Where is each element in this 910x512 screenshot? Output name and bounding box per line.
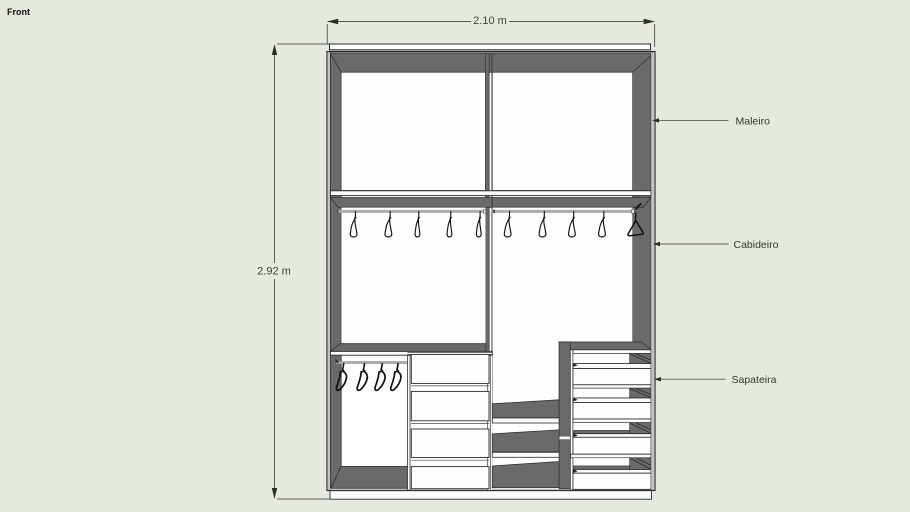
svg-text:Sapateira: Sapateira (732, 374, 777, 386)
svg-text:Maleiro: Maleiro (736, 115, 771, 127)
svg-text:2.92 m: 2.92 m (257, 266, 291, 278)
svg-text:Cabideiro: Cabideiro (734, 239, 779, 251)
svg-text:Front: Front (7, 7, 30, 17)
svg-text:2.10 m: 2.10 m (473, 15, 507, 27)
